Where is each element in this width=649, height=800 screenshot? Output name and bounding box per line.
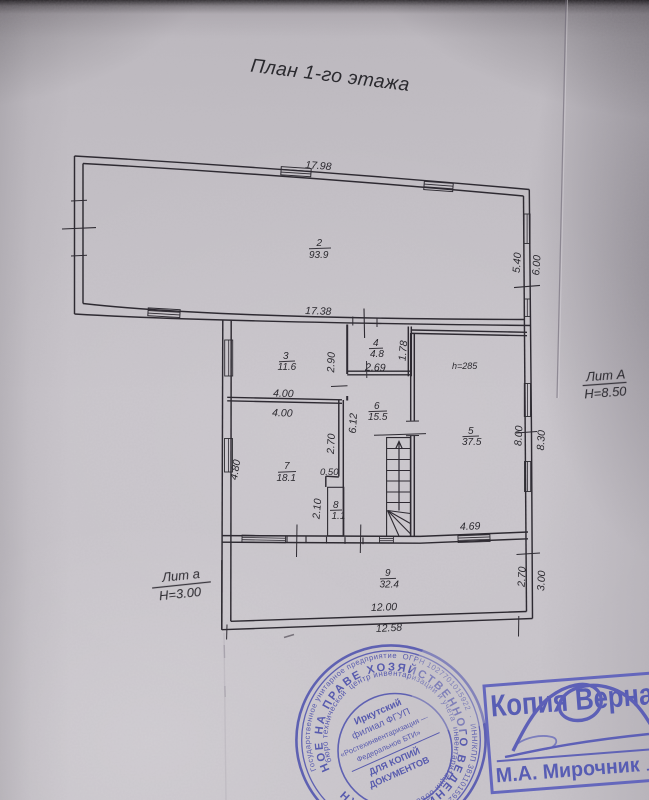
svg-text:2.70: 2.70 — [516, 566, 529, 588]
svg-text:5: 5 — [468, 426, 474, 437]
svg-text:37.5: 37.5 — [462, 437, 482, 448]
svg-text:93.9: 93.9 — [309, 250, 329, 261]
svg-text:4.69: 4.69 — [460, 520, 481, 533]
svg-text:12.00: 12.00 — [371, 601, 398, 614]
svg-text:6.12: 6.12 — [347, 413, 360, 434]
svg-text:h=285: h=285 — [452, 361, 478, 371]
svg-text:6.00: 6.00 — [530, 255, 543, 276]
svg-text:8.00: 8.00 — [512, 425, 525, 446]
svg-text:15.5: 15.5 — [368, 412, 388, 423]
svg-text:2.69: 2.69 — [364, 361, 386, 374]
svg-text:3: 3 — [283, 351, 289, 362]
svg-text:2.70: 2.70 — [325, 433, 338, 455]
svg-text:Лит А: Лит А — [584, 366, 625, 384]
svg-text:4.8: 4.8 — [370, 349, 384, 360]
svg-text:4: 4 — [373, 338, 379, 349]
svg-text:6: 6 — [374, 401, 380, 412]
svg-text:4.00: 4.00 — [272, 407, 293, 420]
svg-text:18.1: 18.1 — [277, 473, 296, 484]
svg-text:3.00: 3.00 — [535, 570, 548, 591]
svg-text:5.40: 5.40 — [511, 252, 524, 273]
svg-text:1.78: 1.78 — [396, 340, 410, 362]
svg-text:17.38: 17.38 — [305, 305, 332, 318]
svg-text:8.30: 8.30 — [535, 430, 548, 451]
svg-text:1.1: 1.1 — [332, 511, 346, 522]
svg-text:17.98: 17.98 — [305, 159, 332, 173]
svg-text:2: 2 — [316, 238, 323, 249]
svg-text:Н=8.50: Н=8.50 — [584, 383, 628, 401]
svg-text:2.10: 2.10 — [310, 498, 324, 521]
svg-text:8: 8 — [333, 500, 339, 511]
svg-text:2.90: 2.90 — [325, 352, 338, 374]
svg-text:32.4: 32.4 — [380, 580, 400, 591]
svg-text:4.00: 4.00 — [273, 388, 294, 401]
svg-text:0.50: 0.50 — [320, 467, 339, 478]
svg-text:12.58: 12.58 — [376, 622, 403, 635]
svg-text:7: 7 — [284, 461, 290, 472]
svg-text:9: 9 — [385, 568, 391, 579]
svg-text:11.6: 11.6 — [278, 362, 297, 373]
